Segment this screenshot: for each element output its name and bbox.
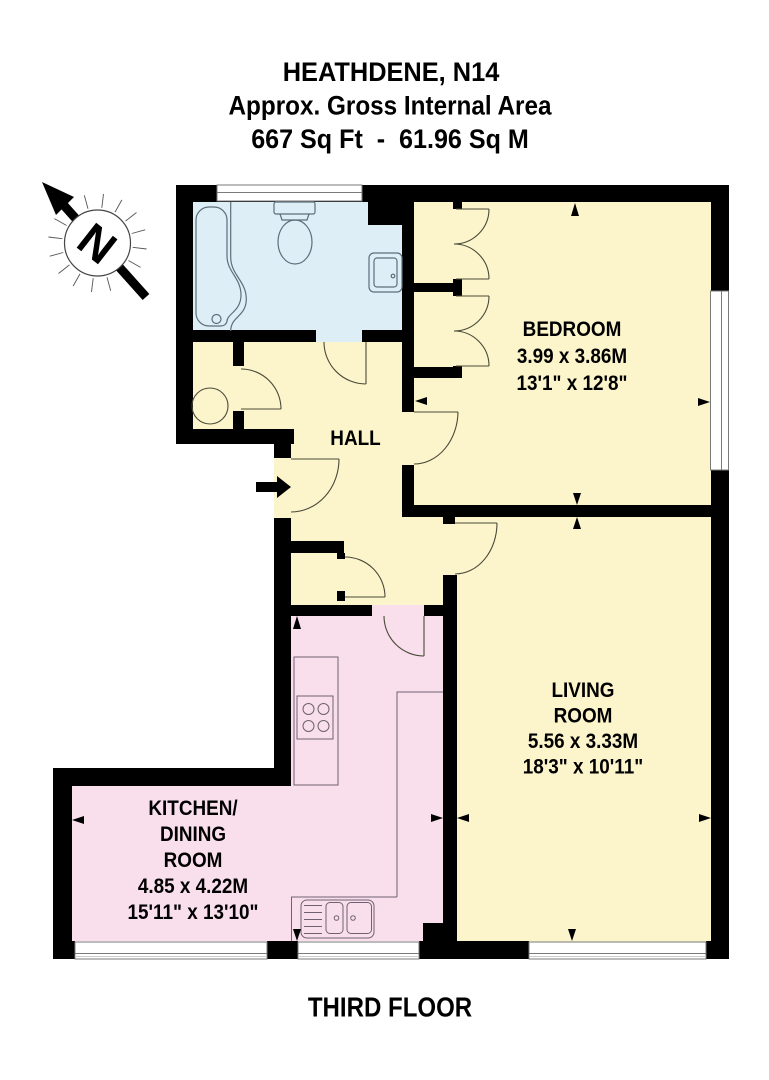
svg-text:THIRD FLOOR: THIRD FLOOR — [308, 993, 473, 1023]
svg-text:HALL: HALL — [330, 427, 380, 450]
svg-text:KITCHEN/: KITCHEN/ — [148, 797, 238, 820]
svg-text:Approx. Gross Internal Area: Approx. Gross Internal Area — [228, 91, 552, 120]
svg-text:15'11" x 13'10": 15'11" x 13'10" — [128, 901, 259, 924]
svg-text:BEDROOM: BEDROOM — [523, 318, 622, 341]
svg-text:5.56 x 3.33M: 5.56 x 3.33M — [528, 730, 638, 753]
svg-text:667 Sq Ft - 61.96 Sq M: 667 Sq Ft - 61.96 Sq M — [251, 123, 529, 154]
svg-text:3.99 x 3.86M: 3.99 x 3.86M — [517, 345, 627, 368]
svg-text:ROOM: ROOM — [554, 705, 613, 728]
svg-text:18'3" x 10'11": 18'3" x 10'11" — [523, 756, 643, 779]
svg-text:13'1" x 12'8": 13'1" x 12'8" — [517, 372, 628, 395]
svg-text:4.85 x 4.22M: 4.85 x 4.22M — [138, 875, 248, 898]
svg-text:DINING: DINING — [160, 823, 226, 846]
svg-text:ROOM: ROOM — [164, 849, 223, 872]
svg-text:LIVING: LIVING — [552, 679, 615, 702]
svg-text:HEATHDENE, N14: HEATHDENE, N14 — [283, 56, 500, 87]
